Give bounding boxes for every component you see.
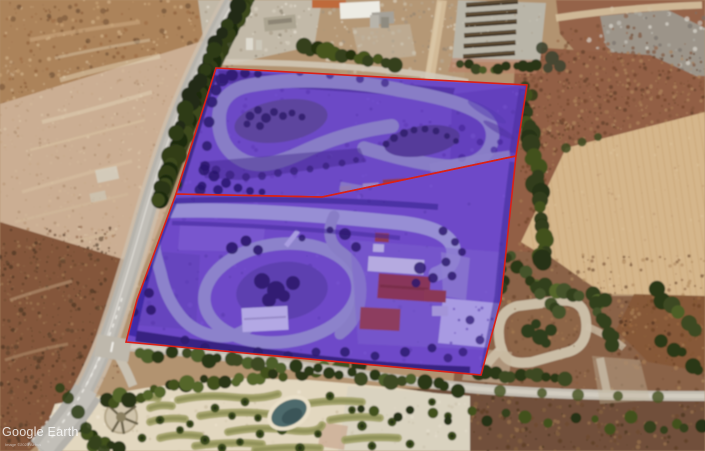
svg-text:Image ©2023 Airbus: Image ©2023 Airbus <box>5 442 41 447</box>
svg-text:Google Earth: Google Earth <box>2 425 79 439</box>
